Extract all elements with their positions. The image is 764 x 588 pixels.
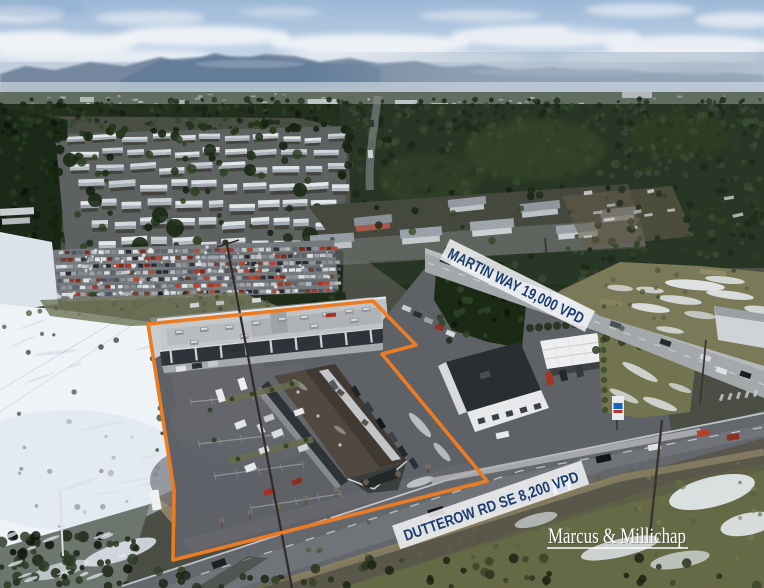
svg-text:Marcus & Millichap: Marcus & Millichap bbox=[548, 523, 686, 548]
